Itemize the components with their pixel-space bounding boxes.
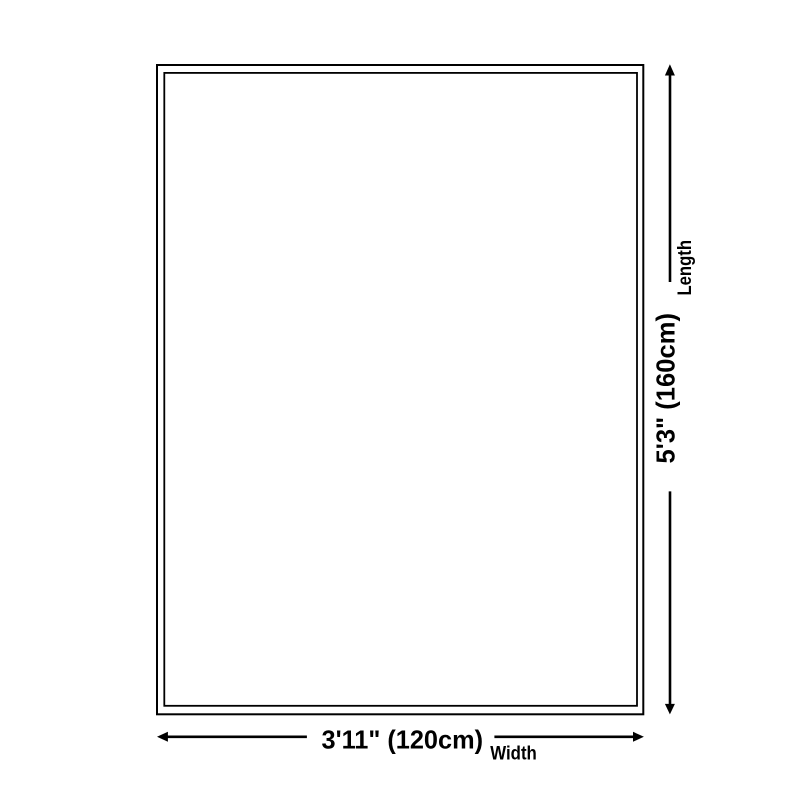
svg-text:5'3" (160cm): 5'3" (160cm) bbox=[651, 313, 681, 464]
svg-text:Length: Length bbox=[674, 240, 696, 296]
svg-text:Width: Width bbox=[490, 742, 537, 764]
svg-text:3'11" (120cm): 3'11" (120cm) bbox=[322, 725, 484, 755]
